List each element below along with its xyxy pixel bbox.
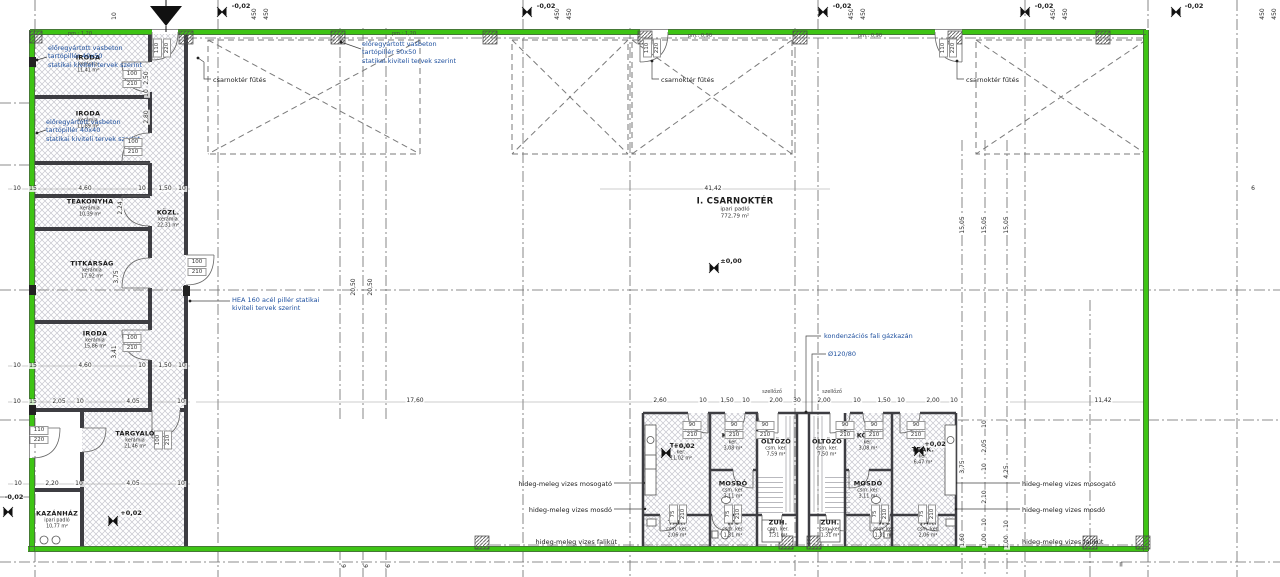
room-name: TEAKONYHA — [67, 198, 114, 206]
room-label-kaz-nh-z: KAZÁNHÁZipari padló10,77 m² — [36, 510, 78, 529]
door-size-value: 90 — [756, 421, 775, 430]
door-size-value: 210 — [836, 431, 855, 440]
room-label-t-rgyal: TÁRGYALÓkerámia21,46 m² — [115, 430, 154, 449]
note-el-regy-rtott-vasbeton: előregyártott vasbeton tartópillér 40x50… — [48, 44, 142, 69]
door-size-tag: 110220 — [30, 426, 49, 444]
door-size-value: 210 — [756, 431, 775, 440]
dimension-label: 10 — [12, 186, 22, 192]
dimension-label: 2,24 — [118, 200, 124, 215]
dimension-label: 6 — [342, 563, 348, 569]
room-name: KAZÁNHÁZ — [36, 510, 78, 518]
door-size-tag: 75210 — [669, 505, 687, 524]
door-size-value: 75 — [918, 505, 927, 524]
room-name: MOSDÓ — [854, 480, 883, 488]
room-name: ZUH. — [819, 519, 840, 527]
dimension-label: 15 — [28, 186, 38, 192]
note-120-80: Ø120/80 — [828, 350, 856, 358]
room-label-i-csarnokt-r: I. CSARNOKTÉRipari padló772,79 m² — [697, 196, 774, 219]
dimension-label: 450 — [555, 7, 561, 20]
level-mark: +0,02 — [120, 509, 141, 517]
room-label-k-zl: KÖZL.kerámia22,31 m² — [157, 209, 180, 228]
room-name: ZUH. — [767, 519, 788, 527]
dimension-label: 2,05 — [51, 399, 66, 405]
dimension-label: 2,00 — [768, 398, 783, 404]
door-size-tag: 110220 — [643, 39, 661, 58]
dimension-label: 4,60 — [77, 363, 92, 369]
entrance-marker-icon — [150, 0, 182, 32]
dimension-label: 10 — [137, 186, 147, 192]
note-csarnokt-r-f-t-s: csarnoktér fűtés — [661, 76, 714, 84]
door-size-value: 210 — [725, 431, 744, 440]
dimension-label: 3,75 — [114, 269, 120, 284]
room-area: 11,02 m² — [670, 456, 692, 462]
door-size-value: 90 — [865, 421, 884, 430]
door-size-tag: 90210 — [756, 421, 775, 439]
room-area: 7,59 m² — [761, 452, 791, 458]
annotation-pm-0-90: pm.: 0,90 — [858, 33, 882, 39]
door-size-value: 210 — [164, 431, 173, 450]
door-size-value: 210 — [734, 505, 743, 524]
door-size-value: 90 — [907, 421, 926, 430]
dimension-label: 10 — [982, 517, 988, 527]
door-size-value: 110 — [643, 39, 652, 58]
room-name: KÖZL. — [157, 209, 180, 217]
dimension-label: 10 — [177, 363, 187, 369]
dimension-label: 10 — [1004, 519, 1010, 529]
door-size-value: 210 — [881, 505, 890, 524]
dimension-label: 1,50 — [876, 398, 891, 404]
room-name: I. CSARNOKTÉR — [697, 196, 774, 206]
dimension-label: 2,80 — [144, 109, 150, 124]
dimension-label: 17,60 — [405, 398, 424, 404]
dimension-label: 10 — [852, 398, 862, 404]
annotation-pm-1-20: pm.: 1,20 — [392, 31, 416, 37]
door-size-value: 220 — [163, 39, 172, 58]
dimension-label: 2,10 — [982, 489, 988, 504]
door-size-value: 210 — [928, 505, 937, 524]
dimension-label: 30 — [792, 398, 802, 404]
annotation-szell-z: szellőző — [822, 389, 842, 395]
note-hea-160-ac-l-pill-r-statikai: HEA 160 acél pillér statikai kiviteli te… — [232, 296, 319, 313]
door-size-value: 100 — [154, 431, 163, 450]
annotation-pm-1-20: pm.: 1,20 — [68, 31, 92, 37]
dimension-label: 10 — [741, 398, 751, 404]
room-label-mosd: MOSDÓcsm. ker.3,11 m² — [719, 480, 748, 499]
door-size-tag: 110220 — [153, 39, 171, 58]
room-name: MOSDÓ — [719, 480, 748, 488]
dimension-label: 1,50 — [157, 363, 172, 369]
dimension-label: 10 — [75, 399, 85, 405]
level-mark: -0,02 — [833, 2, 852, 10]
level-mark: ±0,00 — [720, 257, 741, 265]
level-mark: -0,02 — [5, 493, 24, 501]
dimension-label: 10 — [144, 88, 150, 98]
note-hideg-meleg-vizes-mosd: hideg-meleg vizes mosdó — [1022, 506, 1105, 514]
dimension-label: 20,50 — [368, 277, 374, 296]
door-size-value: 210 — [123, 80, 142, 89]
dimension-label: 1,60 — [960, 532, 966, 547]
room-label-zuh: ZUH.csm. ker.1,31 m² — [819, 519, 840, 538]
room-area: 3,08 m² — [857, 446, 880, 452]
room-finish: csm. ker. — [873, 527, 894, 533]
note-hideg-meleg-vizes-falik-t: hideg-meleg vizes falikút — [522, 538, 617, 546]
dimension-label: 2,60 — [652, 398, 667, 404]
door-size-value: 75 — [669, 505, 678, 524]
dimension-label: 2,00 — [816, 398, 831, 404]
room-area: 21,46 m² — [115, 444, 154, 450]
door-size-value: 75 — [724, 505, 733, 524]
grid-axes — [0, 0, 1280, 577]
room-label-titk-rs-g: TITKÁRSÁGkerámia17,92 m² — [70, 260, 113, 279]
room-area: 772,79 m² — [697, 213, 774, 220]
note-el-regy-rtott-vasbeton: előregyártott vasbeton tartópillér 50x50… — [362, 40, 456, 65]
door-size-value: 100 — [123, 70, 142, 79]
dimension-label: 15,05 — [982, 215, 988, 234]
room-name: ÖLTÖZŐ — [761, 438, 791, 446]
room-label-lt-z: ÖLTÖZŐcsm. ker.7,59 m² — [761, 438, 791, 457]
door-size-value: 210 — [188, 268, 207, 277]
room-finish: csm. ker. — [917, 527, 938, 533]
annotation-szell-z: szellőző — [762, 389, 782, 395]
door-size-tag: 75210 — [871, 505, 889, 524]
dimension-label: 10 — [12, 399, 22, 405]
door-size-tag: 110220 — [939, 39, 957, 58]
level-mark: -0,02 — [537, 2, 556, 10]
door-size-value: 220 — [30, 436, 49, 445]
room-finish: csm. ker. — [722, 527, 743, 533]
room-area: 3,11 m² — [719, 494, 748, 500]
dimension-label: 10 — [177, 186, 187, 192]
room-area: 1,31 m² — [767, 533, 788, 539]
room-area: 2,06 m² — [917, 533, 938, 539]
green-wall-outline — [28, 29, 1149, 551]
room-area: 1,31 m² — [819, 533, 840, 539]
dimension-label: 1,00 — [982, 532, 988, 547]
dimension-label: 10 — [982, 462, 988, 472]
door-size-value: 90 — [836, 421, 855, 430]
dimension-label: 2,05 — [982, 438, 988, 453]
dimension-label: 10 — [12, 363, 22, 369]
dimension-label: 10 — [698, 398, 708, 404]
door-size-value: 100 — [123, 334, 142, 343]
door-size-value: 210 — [865, 431, 884, 440]
dimension-label: 2,20 — [44, 481, 59, 487]
door-size-value: 110 — [153, 39, 162, 58]
door-size-tag: 90210 — [683, 421, 702, 439]
door-size-value: 210 — [124, 148, 143, 157]
door-size-value: 90 — [683, 421, 702, 430]
note-csarnokt-r-f-t-s: csarnoktér fűtés — [966, 76, 1019, 84]
dimension-label: 4,05 — [125, 481, 140, 487]
dimension-label: 10 — [112, 11, 118, 21]
door-size-value: 110 — [30, 426, 49, 435]
room-finish: ipari padló — [697, 207, 774, 214]
door-size-value: 210 — [123, 344, 142, 353]
room-finish: csm. ker. — [767, 527, 788, 533]
room-area: 6,47 m² — [912, 460, 934, 466]
dimension-label: 11,42 — [1093, 398, 1112, 404]
door-size-value: 90 — [725, 421, 744, 430]
door-size-tag: 100210 — [188, 258, 207, 276]
dimension-label: 4,25 — [1004, 464, 1010, 479]
room-area: 1,31 m² — [722, 533, 743, 539]
room-finish: csm. ker. — [761, 446, 791, 452]
room-area: 3,08 m² — [722, 446, 745, 452]
door-size-tag: 100210 — [123, 334, 142, 352]
dimension-label: 2,50 — [144, 70, 150, 85]
dimension-label: 10 — [13, 481, 23, 487]
door-size-tag: 75210 — [724, 505, 742, 524]
room-finish: kerámia — [83, 338, 107, 344]
dimension-label: 10 — [176, 481, 186, 487]
dimension-label: 6 — [1250, 186, 1256, 192]
room-label-teakonyha: TEAKONYHAkerámia10,39 m² — [67, 198, 114, 217]
note-hideg-meleg-vizes-falik-t: hideg-meleg vizes falikút — [1022, 538, 1103, 546]
room-finish: csm. ker. — [719, 488, 748, 494]
room-finish: csm. ker. — [812, 446, 842, 452]
room-area: 1,31 m² — [873, 533, 894, 539]
dimension-label: 6 — [386, 563, 392, 569]
door-size-tag: 75210 — [918, 505, 936, 524]
dimension-label: 10 — [949, 398, 959, 404]
level-mark: +0,02 — [673, 442, 694, 450]
room-area: 10,39 m² — [67, 212, 114, 218]
dimension-label: 6 — [364, 563, 370, 569]
level-mark: -0,02 — [232, 2, 251, 10]
dimension-label: 10 — [982, 419, 988, 429]
dimension-label: 450 — [1272, 7, 1278, 20]
room-area: 2,06 m² — [666, 533, 687, 539]
door-size-tag: 90210 — [907, 421, 926, 439]
door-size-value: 110 — [939, 39, 948, 58]
dimension-label: 450 — [861, 7, 867, 20]
room-name: TÁRGYALÓ — [115, 430, 154, 438]
dimension-label: 4,60 — [77, 186, 92, 192]
room-area: 10,77 m² — [36, 524, 78, 530]
door-size-value: 100 — [188, 258, 207, 267]
floor-plan-drawing — [0, 0, 1280, 577]
note-kondenz-ci-s-fali-g-zkaz-n: kondenzációs fali gázkazán — [824, 332, 913, 340]
door-size-tag: 90210 — [836, 421, 855, 439]
dimension-label: 20,50 — [351, 277, 357, 296]
annotation-ii: II — [1119, 562, 1123, 569]
dimension-label: 1,50 — [719, 398, 734, 404]
room-finish: csm. ker. — [819, 527, 840, 533]
dimension-label: 15 — [28, 399, 38, 405]
room-name: IRODA — [83, 330, 107, 338]
room-finish: csm. ker. — [854, 488, 883, 494]
room-area: 22,31 m² — [157, 223, 180, 229]
floor-plan-canvas: IRODAkerámia11,41 m²IRODAkerámia11,89 m²… — [0, 0, 1280, 577]
dimension-label: 3,41 — [112, 344, 118, 359]
room-finish: kerámia — [157, 217, 180, 223]
dimension-label: 15,05 — [960, 215, 966, 234]
dimension-label: 450 — [264, 7, 270, 20]
heating-zone-boxes — [208, 40, 1146, 154]
dimension-label: 4,05 — [125, 399, 140, 405]
door-size-value: 75 — [871, 505, 880, 524]
dimension-label: 15,05 — [1004, 215, 1010, 234]
room-name: ÖLTÖZŐ — [812, 438, 842, 446]
dimension-label: 15 — [28, 363, 38, 369]
dimension-label: 450 — [252, 7, 258, 20]
dimension-label: 10 — [137, 363, 147, 369]
door-size-tag: 90210 — [865, 421, 884, 439]
note-hideg-meleg-vizes-mosd: hideg-meleg vizes mosdó — [480, 506, 612, 514]
room-label-teak: TEAK.ker.6,47 m² — [912, 446, 934, 465]
note-hideg-meleg-vizes-mosogat: hideg-meleg vizes mosogató — [480, 480, 612, 488]
room-area: 3,11 m² — [854, 494, 883, 500]
door-size-tag: 100210 — [123, 70, 142, 88]
room-area: 15,86 m² — [83, 344, 107, 350]
dimension-label: 3,75 — [960, 459, 966, 474]
door-size-tag: 100210 — [124, 138, 143, 156]
room-area: 7,50 m² — [812, 452, 842, 458]
dimension-label: 41,42 — [703, 186, 722, 192]
room-name: IRODA — [76, 110, 100, 118]
dimension-label: 1,00 — [1004, 534, 1010, 549]
door-size-value: 210 — [679, 505, 688, 524]
room-label-mosd: MOSDÓcsm. ker.3,11 m² — [854, 480, 883, 499]
dimension-label: 1,50 — [157, 186, 172, 192]
note-hideg-meleg-vizes-mosogat: hideg-meleg vizes mosogató — [1022, 480, 1116, 488]
dimension-label: 2,00 — [925, 398, 940, 404]
door-size-value: 220 — [949, 39, 958, 58]
room-name: TITKÁRSÁG — [70, 260, 113, 268]
annotation-pm-0-90: pm.: 0,90 — [688, 33, 712, 39]
door-size-tag: 100210 — [154, 431, 172, 450]
level-mark: +0,02 — [924, 440, 945, 448]
room-finish: csm. ker. — [666, 527, 687, 533]
note-csarnokt-r-f-t-s: csarnoktér fűtés — [213, 76, 266, 84]
dimension-label: 450 — [567, 7, 573, 20]
room-label-lt-z: ÖLTÖZŐcsm. ker.7,50 m² — [812, 438, 842, 457]
dimension-label: 10 — [896, 398, 906, 404]
door-size-tag: 90210 — [725, 421, 744, 439]
room-label-iroda: IRODAkerámia15,86 m² — [83, 330, 107, 349]
dimension-label: 10 — [74, 481, 84, 487]
door-size-value: 100 — [124, 138, 143, 147]
dimension-label: 450 — [1260, 7, 1266, 20]
level-mark: -0,02 — [1035, 2, 1054, 10]
room-area: 17,92 m² — [70, 274, 113, 280]
room-label-zuh: ZUH.csm. ker.1,31 m² — [767, 519, 788, 538]
door-size-value: 210 — [683, 431, 702, 440]
dimension-label: 450 — [1063, 7, 1069, 20]
door-size-value: 220 — [653, 39, 662, 58]
door-size-value: 210 — [907, 431, 926, 440]
dimension-label: 10 — [176, 399, 186, 405]
level-mark: -0,02 — [1185, 2, 1204, 10]
